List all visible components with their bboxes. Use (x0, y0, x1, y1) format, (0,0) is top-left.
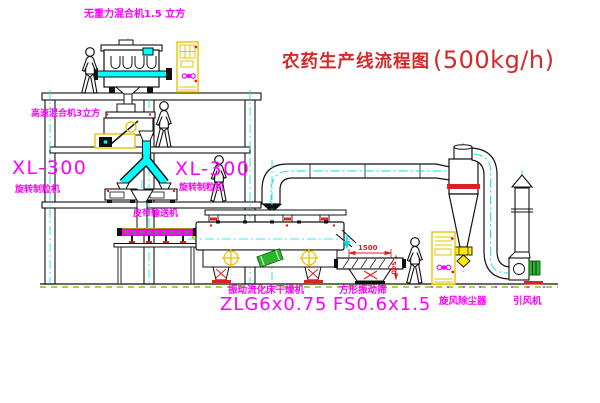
diagram-title: 农药生产线流程图 (500kg/h) (282, 46, 554, 74)
label-dryer-model: ZLG6x0.75 (220, 296, 328, 314)
label-xl300-right: XL-300 (175, 160, 250, 179)
label-fan: 引风机 (513, 297, 542, 307)
induced-draft-fan (509, 258, 543, 285)
dimension-540: 540 (390, 261, 397, 275)
title-capacity: (500kg/h) (433, 46, 554, 74)
label-belt-conveyor: 皮带输送机 (133, 210, 178, 219)
label-cyclone: 旋风除尘器 (439, 297, 487, 307)
person-second-floor (156, 102, 171, 148)
control-cabinet-right (432, 232, 455, 284)
person-top-platform (82, 48, 97, 93)
label-xl300-left: XL-300 (12, 159, 87, 178)
label-sieve-model: FS0.6x1.5 (333, 296, 431, 314)
label-granulator-left: 旋转制粒机 (15, 186, 60, 195)
label-gravity-free-mixer: 无重力混合机1.5 立方 (84, 10, 185, 20)
control-cabinet-top (177, 42, 198, 92)
dimension-1500: 1500 (358, 245, 377, 252)
flow-diagram: 无重力混合机1.5 立方 农药生产线流程图 (500kg/h) 高速混合机3立方… (0, 0, 600, 403)
label-granulator-right: 旋转制粒机 (179, 184, 224, 193)
person-ground (407, 238, 422, 284)
belt-conveyor (114, 226, 208, 284)
label-high-speed-mixer: 高速混合机3立方 (31, 110, 100, 119)
fluid-bed-dryer (188, 210, 352, 283)
title-text: 农药生产线流程图 (282, 48, 430, 73)
